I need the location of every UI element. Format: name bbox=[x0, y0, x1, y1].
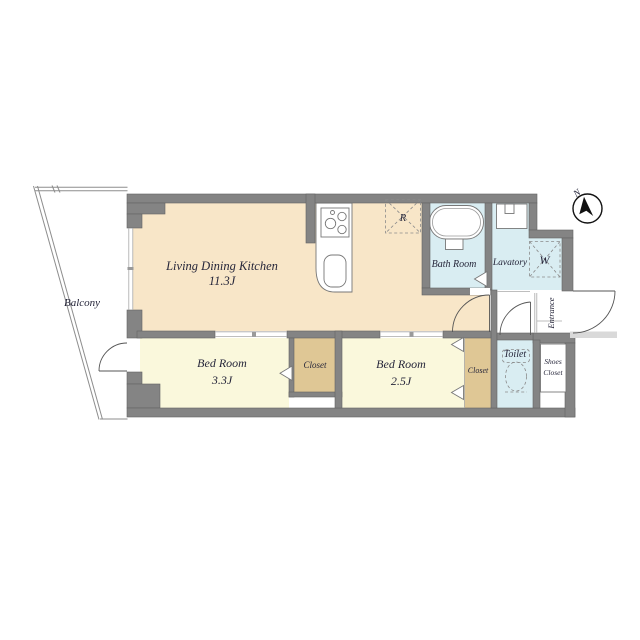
shoes-closet-label-line2: Closet bbox=[543, 368, 563, 377]
bath-door-gap bbox=[470, 288, 490, 295]
closet1-label: Closet bbox=[303, 360, 327, 370]
lavatory-sink-icon bbox=[497, 204, 528, 229]
bedroom1-label: Bed Room bbox=[197, 356, 247, 370]
bedroom1-sliding-door bbox=[215, 332, 287, 337]
floor-plan: N Balcony Living Dining Kitchen 11.3J Be… bbox=[0, 0, 640, 640]
entrance-label: Entrance bbox=[546, 297, 556, 329]
refrigerator-mark: R bbox=[399, 213, 407, 224]
ldk-balcony-window bbox=[128, 228, 134, 310]
balcony-door-arc bbox=[99, 343, 127, 371]
bedroom2-floor bbox=[342, 338, 465, 408]
compass-icon: N bbox=[571, 188, 602, 223]
toilet-label: Toilet bbox=[504, 349, 527, 360]
floor-plan-page: N Balcony Living Dining Kitchen 11.3J Be… bbox=[0, 0, 640, 640]
balcony-label: Balcony bbox=[64, 297, 100, 309]
bedroom1-size: 3.3J bbox=[211, 373, 233, 387]
bedroom2-size: 2.5J bbox=[391, 374, 412, 388]
shoes-closet-label-line1: Shoes bbox=[544, 357, 562, 366]
washer-mark: W bbox=[540, 253, 551, 267]
ldk-label: Living Dining Kitchen bbox=[165, 259, 278, 273]
closet2-label: Closet bbox=[468, 366, 489, 375]
lavatory-label: Lavatory bbox=[492, 258, 528, 268]
bedroom2-label: Bed Room bbox=[376, 357, 426, 371]
ldk-size: 11.3J bbox=[209, 274, 237, 288]
kitchen-counter-icon bbox=[316, 203, 352, 292]
bedroom2-sliding-door bbox=[380, 332, 443, 337]
toilet-door-arc bbox=[500, 302, 531, 335]
entrance-door-arc bbox=[570, 291, 617, 338]
bathroom-label: Bath Room bbox=[432, 259, 477, 270]
